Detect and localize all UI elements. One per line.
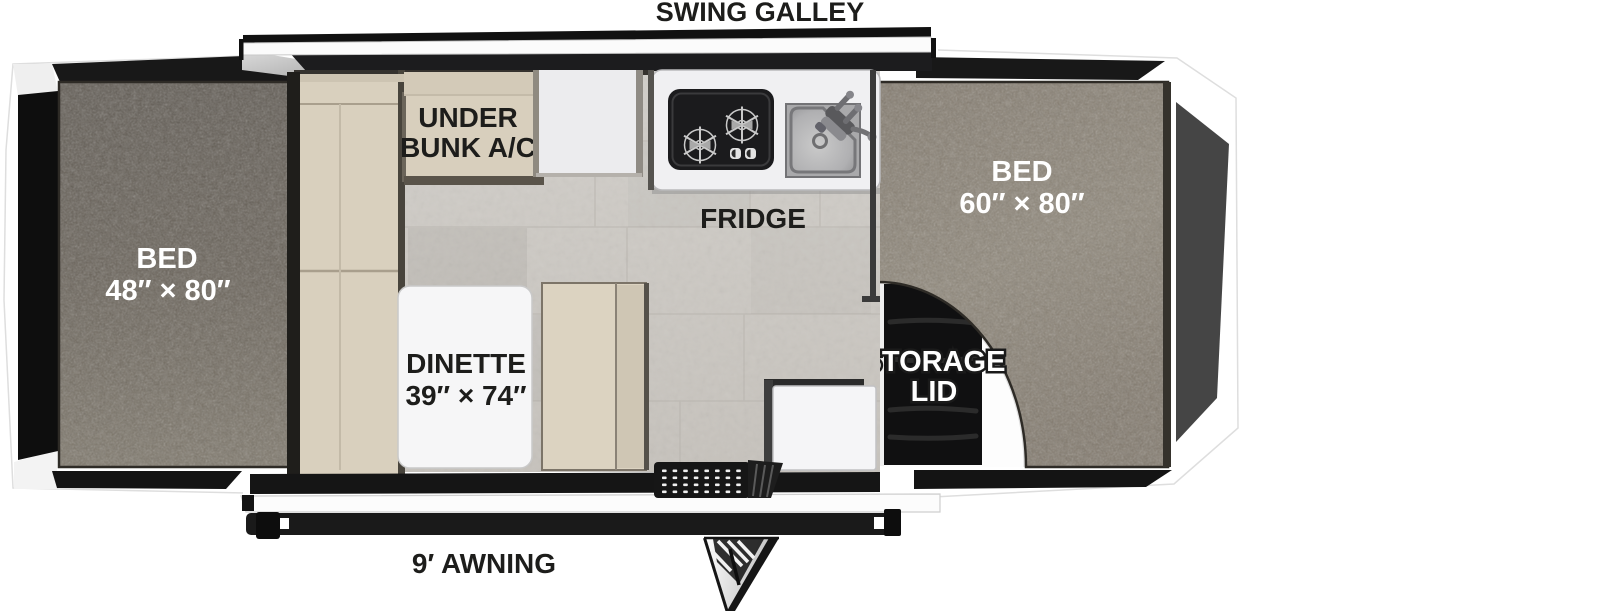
svg-text:9′ AWNING: 9′ AWNING (412, 548, 556, 579)
svg-text:BUNK A/C: BUNK A/C (400, 132, 536, 163)
svg-text:39″ × 74″: 39″ × 74″ (405, 380, 526, 411)
svg-text:UNDER: UNDER (418, 102, 518, 133)
svg-text:DINETTE: DINETTE (406, 348, 526, 379)
svg-text:STORAGE: STORAGE (863, 346, 1006, 378)
svg-text:BED: BED (991, 156, 1052, 188)
svg-text:BED: BED (136, 243, 197, 275)
svg-text:LID: LID (911, 376, 958, 408)
svg-text:SWING GALLEY: SWING GALLEY (656, 0, 865, 27)
svg-text:FRIDGE: FRIDGE (700, 203, 806, 234)
svg-text:48″ × 80″: 48″ × 80″ (105, 275, 230, 307)
svg-text:60″ × 80″: 60″ × 80″ (959, 188, 1084, 220)
